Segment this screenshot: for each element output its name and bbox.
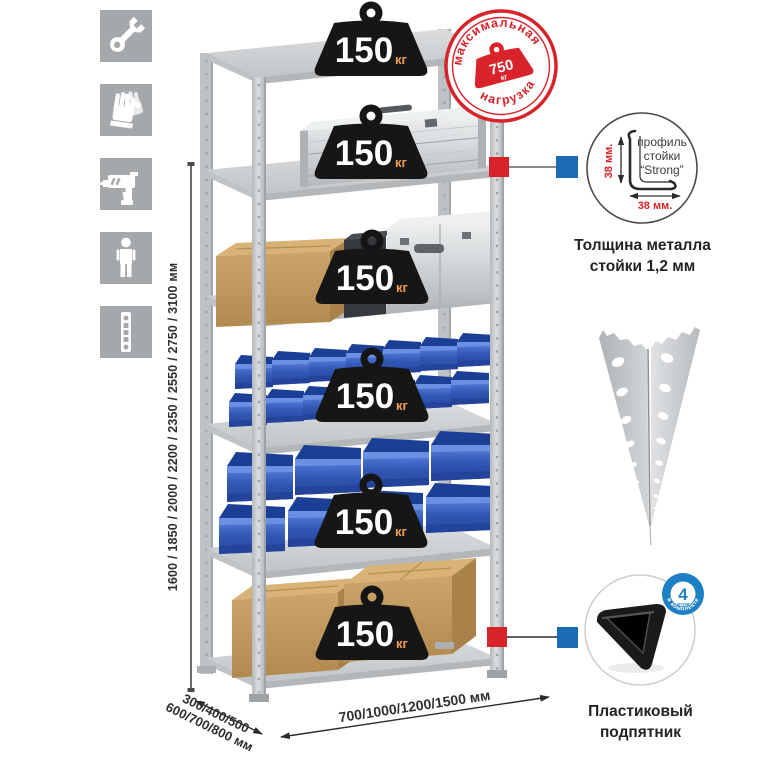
feature-tile-drill [100,158,152,210]
weight-badge-1: 150 кг [315,5,428,76]
svg-text:профиль: профиль [637,135,687,149]
height-dimension-line [188,162,195,692]
red-marker-top [489,157,509,177]
person-icon [100,232,152,284]
svg-text:кг: кг [396,636,409,651]
svg-text:150: 150 [336,259,394,298]
wrench-icon [100,10,152,62]
svg-text:150: 150 [335,503,393,542]
blue-marker-top [556,156,578,178]
red-marker-bottom [487,627,507,647]
svg-text:кг: кг [396,398,409,413]
svg-text:150: 150 [335,134,393,173]
gloves-icon [100,84,152,136]
svg-text:150: 150 [336,615,394,654]
profile-dim-vertical: 38 мм. [603,144,615,179]
profile-caption: Толщина металла стойки 1,2 мм [555,236,730,278]
infographic-canvas: 150 кг 150 кг 150 кг 150 кг 150 кг 150 к… [0,0,765,765]
svg-text:“Strong”: “Strong” [640,163,683,177]
profile-dim-horizontal: 38 мм. [638,200,673,212]
svg-text:кг: кг [395,155,408,170]
feature-tile-assembly [100,10,152,62]
connector-top [489,156,578,178]
feature-tile-profile [100,306,152,358]
svg-text:150: 150 [335,31,393,70]
svg-text:150: 150 [336,377,394,416]
svg-text:кг: кг [395,524,408,539]
angle-post-image [599,327,700,545]
foot-caption: Пластиковый подпятник [553,702,728,744]
svg-text:кг: кг [396,280,409,295]
feature-tile-person [100,232,152,284]
blue-marker-bottom [557,627,578,648]
svg-text:стойки: стойки [644,149,681,163]
drill-icon [100,158,152,210]
svg-text:кг: кг [395,52,408,67]
rack-profile-icon [100,306,152,358]
connector-bottom [487,627,578,648]
profile-callout-circle: 38 мм. 38 мм. профиль стойки “Strong” [587,113,697,223]
kit-badge: 4 штуки в комплекте [662,573,704,615]
feature-tile-gloves [100,84,152,136]
height-dimension-label: 1600 / 1850 / 2000 / 2200 / 2350 / 2550 … [166,157,180,697]
